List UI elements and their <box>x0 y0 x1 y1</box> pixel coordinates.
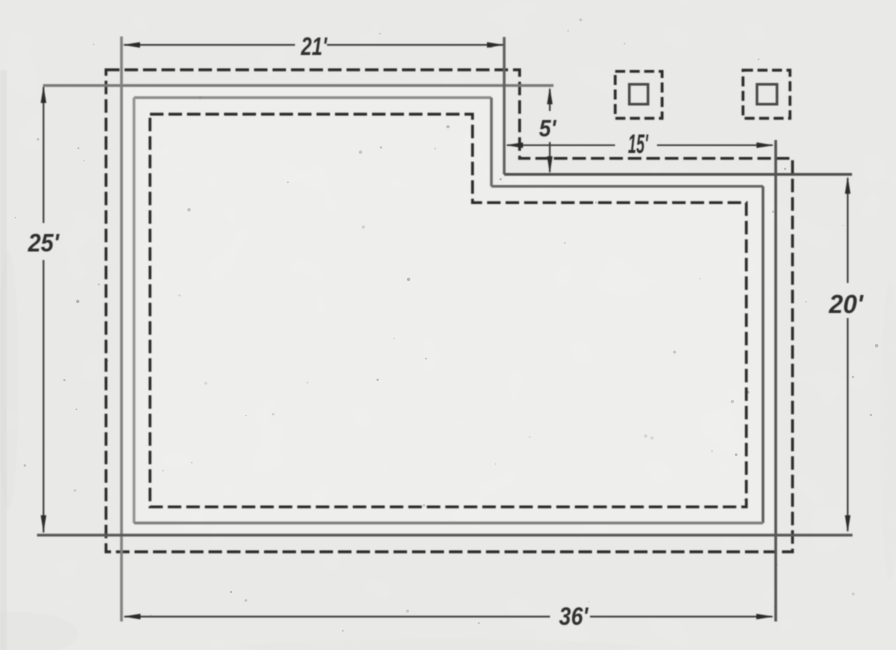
svg-text:25': 25' <box>27 230 60 258</box>
svg-text:20': 20' <box>828 289 864 319</box>
svg-text:15': 15' <box>628 129 649 159</box>
svg-text:36': 36' <box>559 603 589 631</box>
svg-text:21': 21' <box>300 33 328 61</box>
svg-text:5': 5' <box>539 116 557 143</box>
